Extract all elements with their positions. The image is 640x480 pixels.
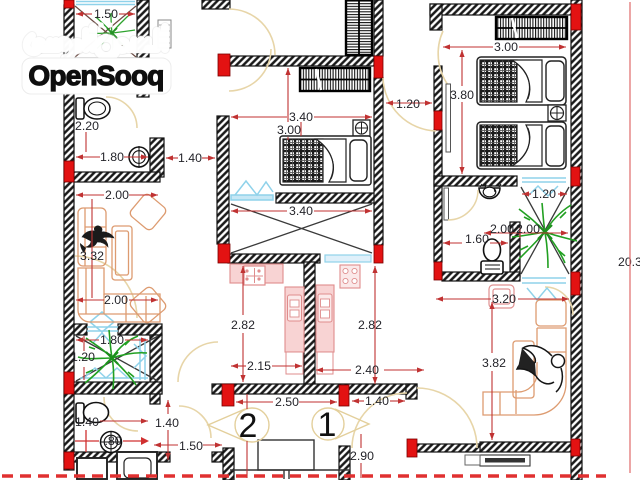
- svg-text:OpenSooq: OpenSooq: [28, 60, 163, 91]
- svg-text:3.20: 3.20: [492, 292, 516, 306]
- svg-text:1.20: 1.20: [396, 97, 420, 111]
- svg-text:1.40: 1.40: [155, 416, 179, 430]
- svg-text:3.40: 3.40: [289, 204, 313, 218]
- svg-text:2.00: 2.00: [490, 222, 514, 236]
- svg-text:1.50: 1.50: [94, 7, 118, 21]
- svg-text:20.3: 20.3: [618, 255, 640, 269]
- svg-text:3.40: 3.40: [289, 110, 313, 124]
- svg-text:3.82: 3.82: [482, 356, 506, 370]
- svg-text:1.60: 1.60: [465, 232, 489, 246]
- svg-text:2.20: 2.20: [75, 119, 99, 133]
- svg-text:2.15: 2.15: [247, 359, 271, 373]
- svg-text:2.82: 2.82: [358, 318, 382, 332]
- svg-text:2.00: 2.00: [516, 222, 540, 236]
- svg-text:2: 2: [239, 407, 258, 445]
- svg-text:1.80: 1.80: [100, 333, 124, 347]
- svg-text:1.40: 1.40: [365, 394, 389, 408]
- svg-text:2.82: 2.82: [231, 318, 255, 332]
- svg-text:1: 1: [318, 406, 337, 444]
- svg-text:2.40: 2.40: [355, 363, 379, 377]
- svg-text:3.00: 3.00: [277, 123, 301, 137]
- svg-text:2.50: 2.50: [275, 395, 299, 409]
- svg-text:2.00: 2.00: [105, 188, 129, 202]
- svg-text:.80: .80: [104, 434, 121, 448]
- svg-text:3.00: 3.00: [494, 40, 518, 54]
- svg-text:1.40: 1.40: [178, 151, 202, 165]
- svg-text:3.80: 3.80: [450, 88, 474, 102]
- svg-text:1.20: 1.20: [71, 350, 95, 364]
- svg-text:1.20: 1.20: [532, 187, 556, 201]
- svg-text:1.40: 1.40: [75, 415, 99, 429]
- svg-text:3.32: 3.32: [80, 249, 104, 263]
- svg-text:1.80: 1.80: [100, 150, 124, 164]
- svg-text:2.90: 2.90: [350, 449, 374, 463]
- svg-text:2.00: 2.00: [104, 293, 128, 307]
- svg-text:1.50: 1.50: [179, 439, 203, 453]
